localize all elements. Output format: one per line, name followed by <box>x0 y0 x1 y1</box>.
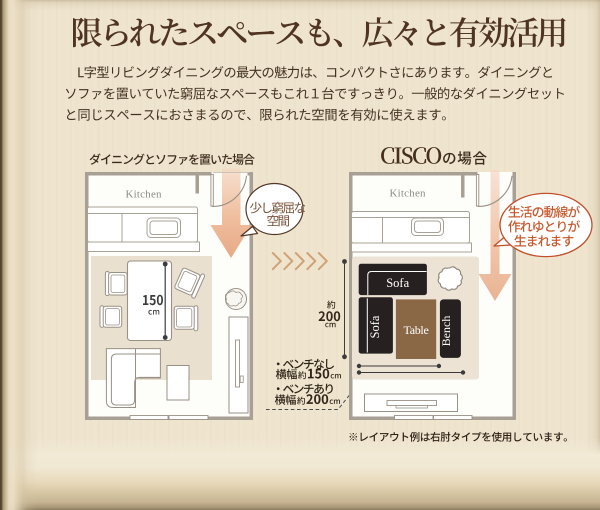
svg-text:Bench: Bench <box>439 316 453 347</box>
svg-text:Sofa: Sofa <box>386 276 409 290</box>
svg-text:Sofa: Sofa <box>368 315 382 338</box>
svg-text:Table: Table <box>404 323 429 337</box>
svg-text:Kitchen: Kitchen <box>126 189 163 201</box>
svg-text:Kitchen: Kitchen <box>390 188 427 200</box>
